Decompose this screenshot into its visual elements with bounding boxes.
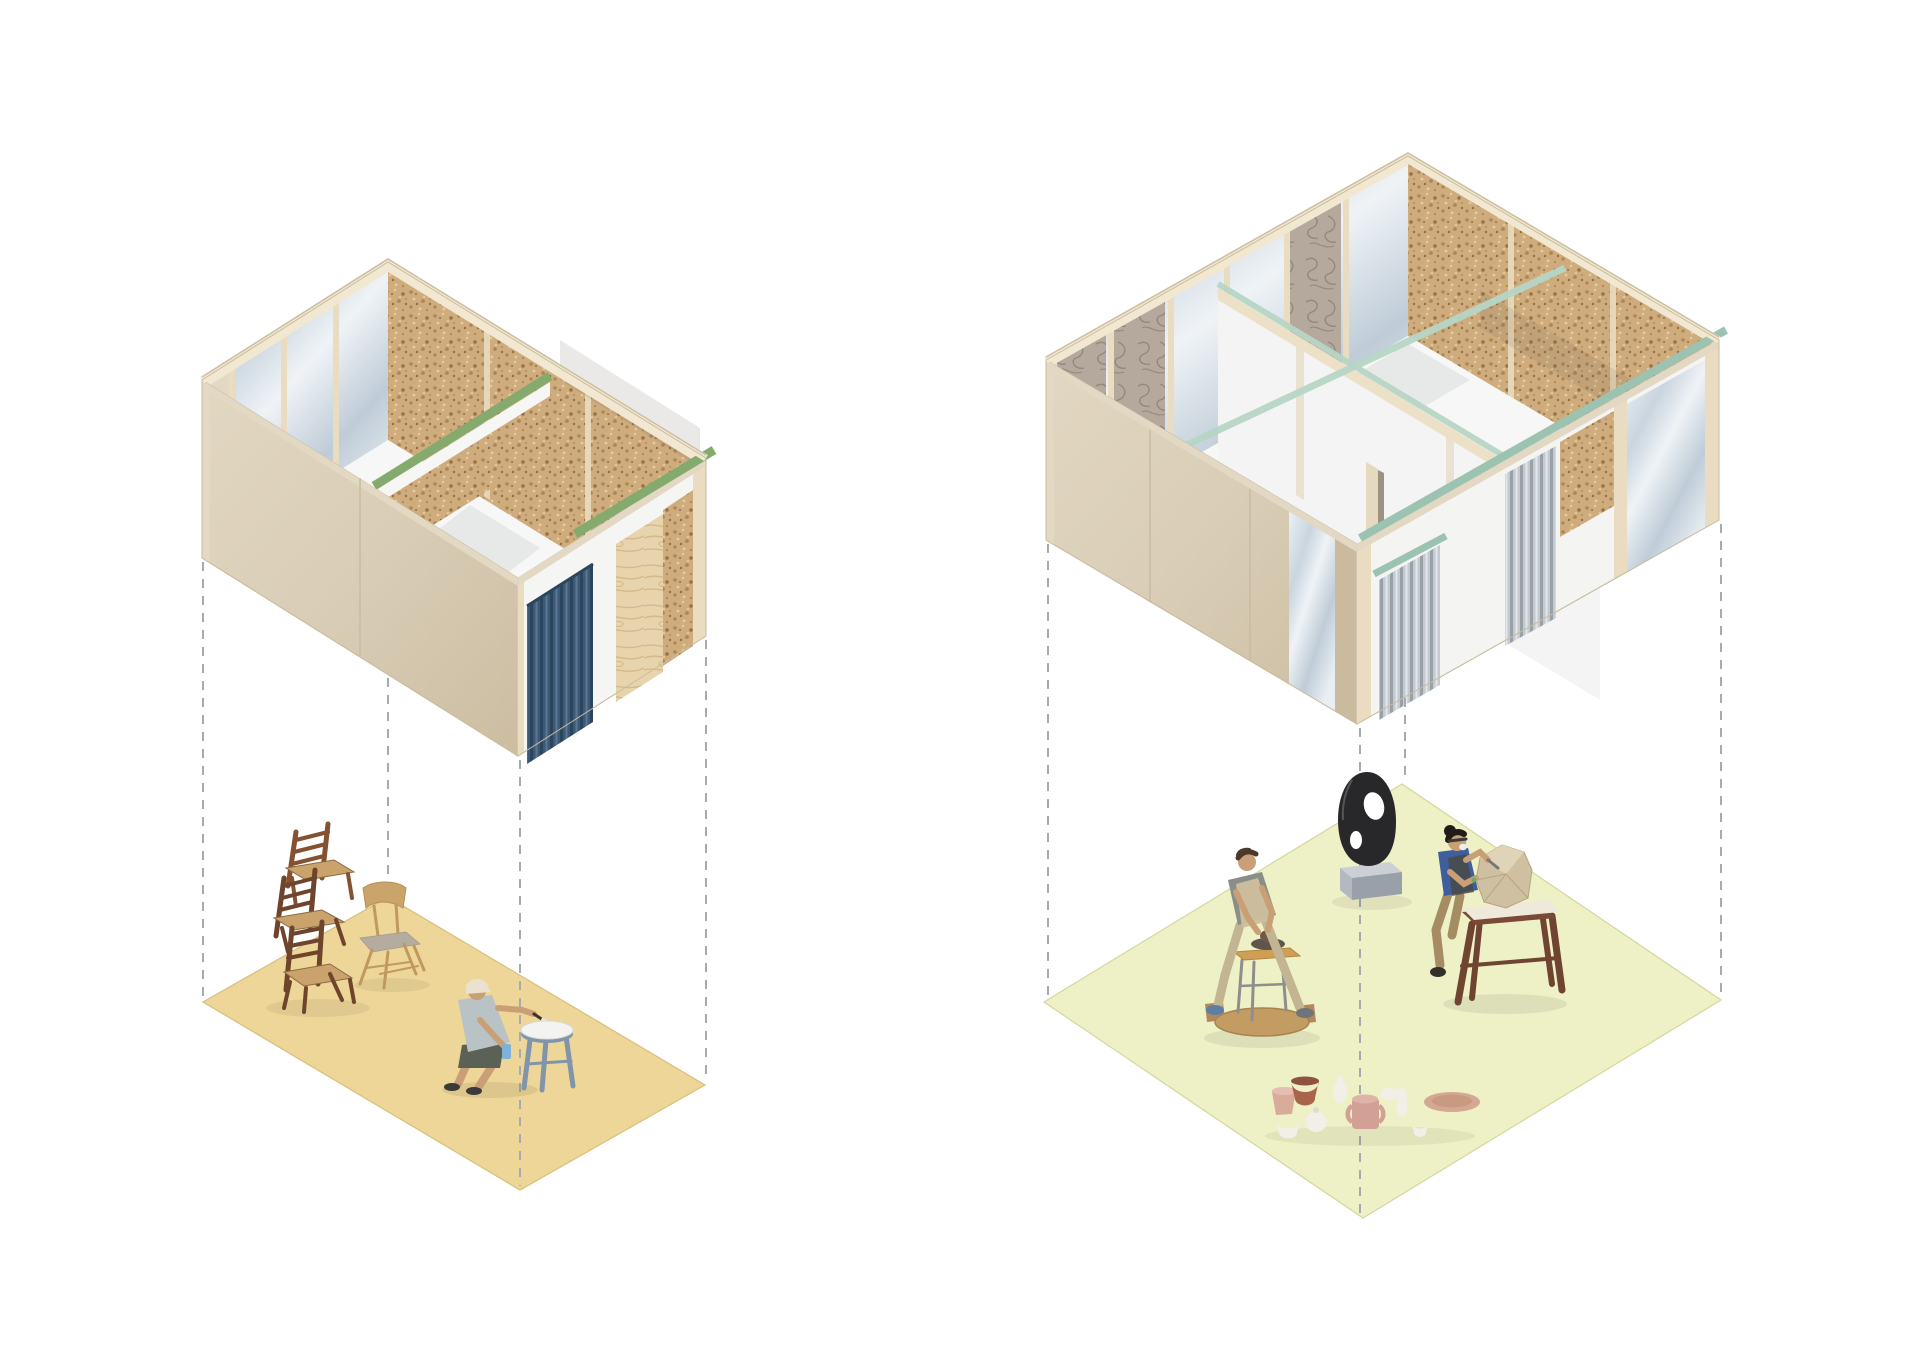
stud xyxy=(1508,215,1514,399)
shoe xyxy=(1430,967,1446,977)
sculpture-body xyxy=(1338,772,1396,866)
shoe xyxy=(1206,1005,1224,1015)
shoe xyxy=(466,1087,482,1095)
left-building xyxy=(202,259,714,764)
stud xyxy=(1343,189,1349,373)
corner-post xyxy=(693,458,706,644)
axonometric-diagram xyxy=(0,0,1920,1357)
left-unit xyxy=(202,259,714,1190)
partition-stud xyxy=(1296,345,1304,500)
goggles-band xyxy=(1449,839,1466,841)
spray-bottle xyxy=(502,1044,511,1059)
white-bottle xyxy=(1333,1081,1347,1103)
left-floor-plane xyxy=(203,897,705,1190)
sculpture-hole xyxy=(1350,831,1362,849)
white-vase xyxy=(1397,1088,1408,1116)
right-unit xyxy=(1044,153,1726,1218)
shadow xyxy=(354,978,430,992)
shoe xyxy=(1296,1008,1314,1018)
white-jar xyxy=(1305,1112,1327,1132)
stud xyxy=(333,293,339,475)
wheel-base xyxy=(1215,1008,1309,1036)
corner-post xyxy=(1335,531,1357,724)
dust-mask xyxy=(1459,844,1467,850)
stool-top xyxy=(521,1021,573,1039)
right-building xyxy=(1046,153,1726,724)
translucent-bay xyxy=(1289,504,1335,711)
shoe xyxy=(444,1083,460,1091)
plywood-door-panel xyxy=(616,514,663,702)
stud xyxy=(1614,392,1627,579)
corner-post xyxy=(1705,340,1719,528)
cork-strip xyxy=(663,490,693,666)
wristband xyxy=(1472,878,1477,883)
